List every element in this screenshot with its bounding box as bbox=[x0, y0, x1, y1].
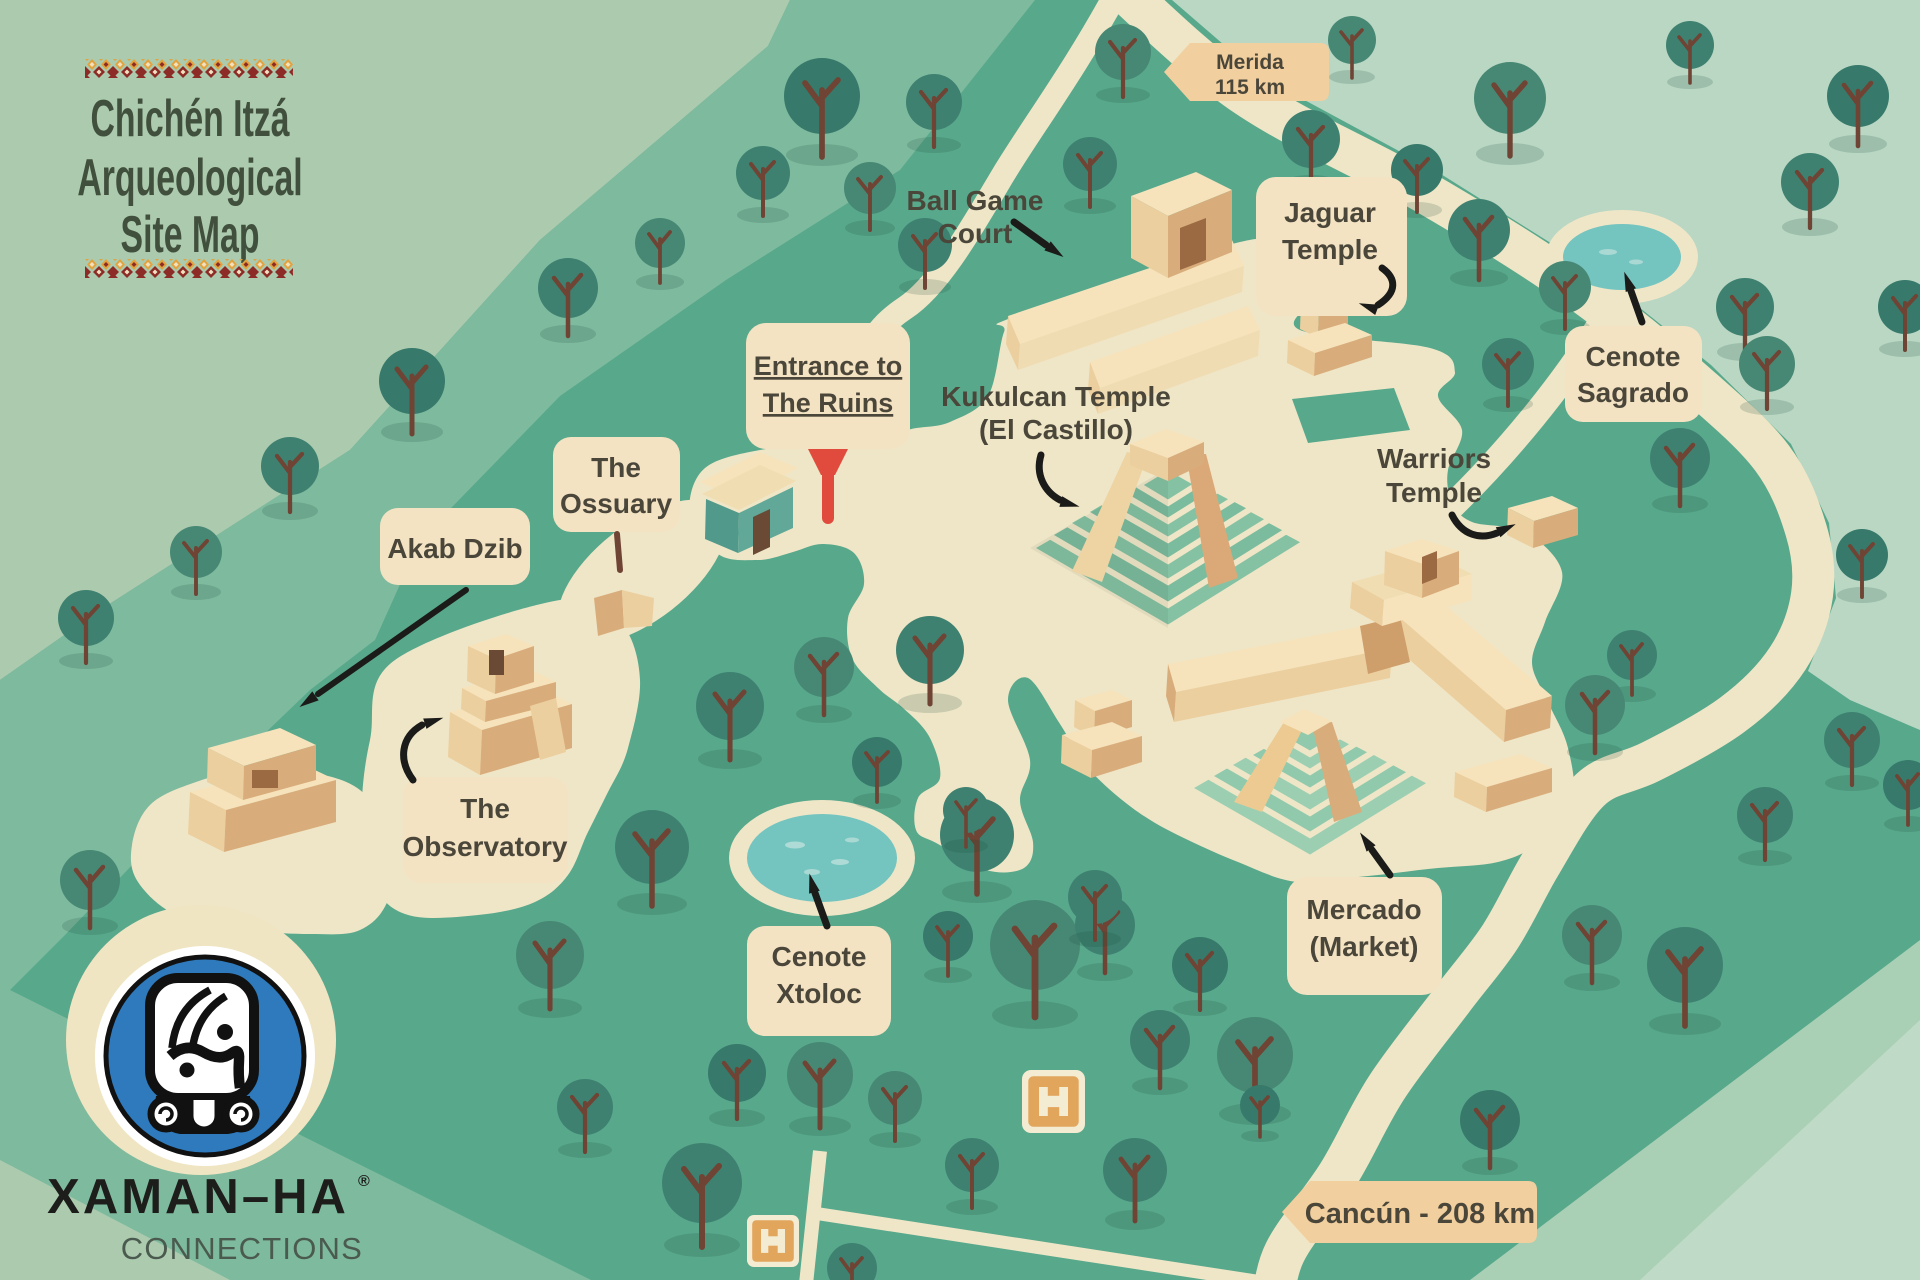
svg-text:115 km: 115 km bbox=[1215, 76, 1285, 99]
svg-text:Xtoloc: Xtoloc bbox=[776, 978, 862, 1009]
svg-text:The Ruins: The Ruins bbox=[763, 388, 894, 418]
svg-text:The: The bbox=[591, 452, 641, 483]
svg-text:Cancún - 208 km: Cancún - 208 km bbox=[1305, 1198, 1535, 1230]
svg-text:CONNECTIONS: CONNECTIONS bbox=[121, 1231, 363, 1266]
svg-text:Court: Court bbox=[938, 218, 1013, 249]
svg-text:Arqueological: Arqueological bbox=[77, 149, 302, 207]
svg-text:(Market): (Market) bbox=[1310, 931, 1419, 962]
svg-text:Sagrado: Sagrado bbox=[1577, 377, 1689, 408]
svg-text:Mercado: Mercado bbox=[1306, 894, 1421, 925]
svg-text:Merida: Merida bbox=[1216, 51, 1284, 74]
svg-text:Jaguar: Jaguar bbox=[1284, 197, 1376, 228]
svg-text:Temple: Temple bbox=[1386, 477, 1482, 508]
svg-text:Cenote: Cenote bbox=[1586, 341, 1681, 372]
svg-text:Warriors: Warriors bbox=[1377, 443, 1491, 474]
svg-text:Observatory: Observatory bbox=[403, 831, 568, 862]
svg-text:Cenote: Cenote bbox=[772, 941, 867, 972]
svg-text:Temple: Temple bbox=[1282, 234, 1378, 265]
svg-text:Kukulcan Temple: Kukulcan Temple bbox=[941, 381, 1171, 412]
svg-text:(El Castillo): (El Castillo) bbox=[979, 414, 1133, 445]
svg-text:Site Map: Site Map bbox=[121, 206, 260, 264]
svg-text:The: The bbox=[460, 793, 510, 824]
svg-text:Ball Game: Ball Game bbox=[907, 185, 1044, 216]
svg-text:®: ® bbox=[358, 1173, 370, 1190]
svg-text:Entrance to: Entrance to bbox=[754, 351, 903, 381]
svg-text:Ossuary: Ossuary bbox=[560, 488, 672, 519]
svg-text:XAMAN–HA: XAMAN–HA bbox=[47, 1170, 349, 1224]
svg-text:Chichén Itzá: Chichén Itzá bbox=[90, 90, 289, 148]
svg-text:Akab Dzib: Akab Dzib bbox=[387, 533, 522, 564]
